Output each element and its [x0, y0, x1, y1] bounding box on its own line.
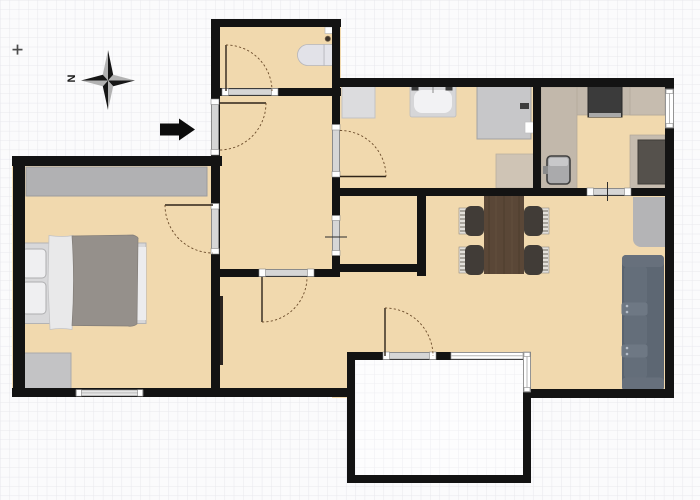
svg-text:N: N: [66, 74, 78, 82]
